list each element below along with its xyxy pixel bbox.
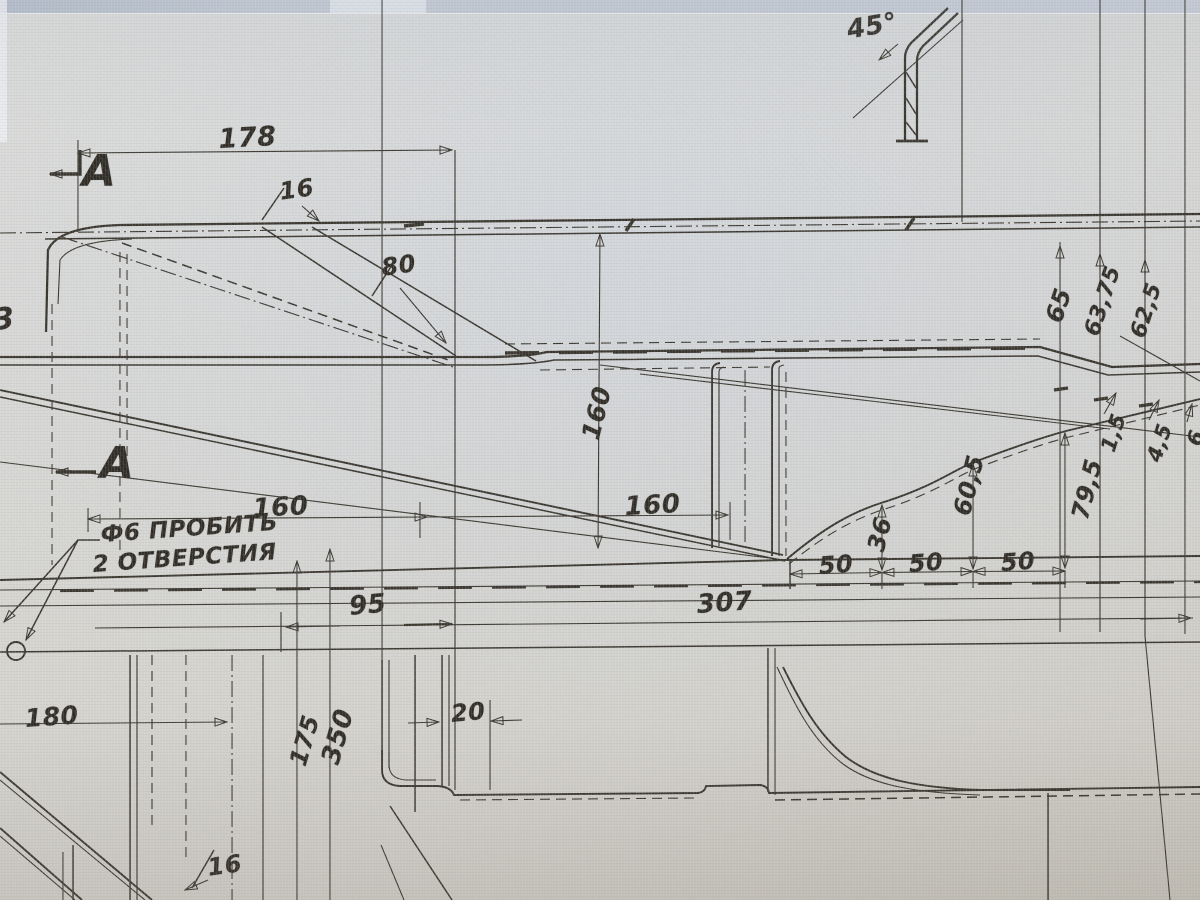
upper-chord-structure [0,0,1200,790]
blueprint-photo: 178168045°AA3160160160Ф6 ПРОБИТЬ2 ОТВЕРС… [0,0,1200,900]
dimension-lines [0,140,1192,900]
drawing-linework [0,0,1200,900]
bent-strip-detail [853,8,963,141]
lower-structure [0,636,1200,900]
